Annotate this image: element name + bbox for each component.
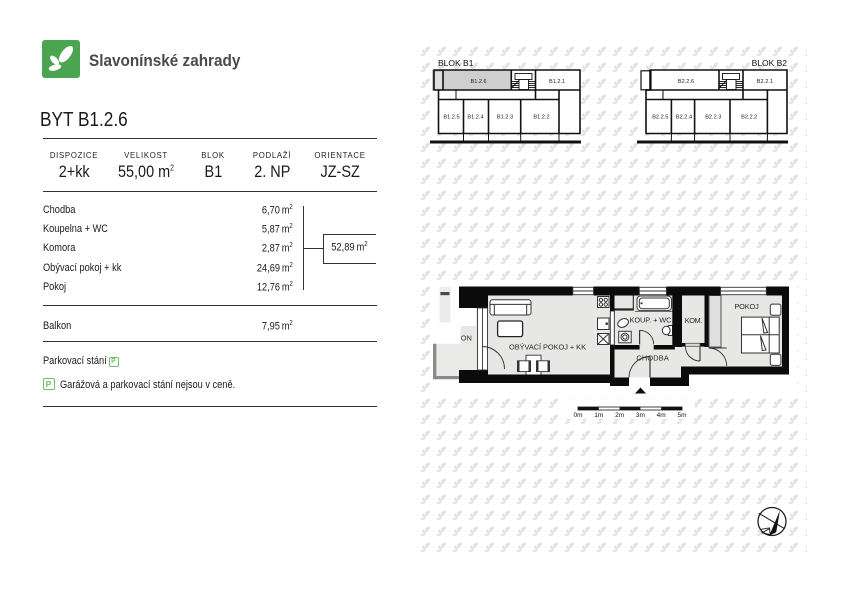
- svg-text:B1.2.4: B1.2.4: [467, 115, 483, 121]
- svg-text:B1.2.6: B1.2.6: [471, 79, 487, 85]
- svg-text:KOM.: KOM.: [685, 316, 703, 325]
- svg-text:B2.2.6: B2.2.6: [678, 79, 694, 85]
- svg-text:BLOK B2: BLOK B2: [752, 58, 788, 68]
- svg-text:B2.2.5: B2.2.5: [652, 115, 668, 121]
- svg-text:POKOJ: POKOJ: [734, 302, 759, 311]
- svg-text:B1.2.5: B1.2.5: [443, 115, 459, 121]
- svg-text:1m: 1m: [594, 412, 603, 419]
- svg-text:0m: 0m: [573, 412, 582, 419]
- svg-text:BLOK B1: BLOK B1: [438, 58, 474, 68]
- svg-text:2m: 2m: [615, 412, 624, 419]
- svg-text:CHODBA: CHODBA: [636, 354, 669, 363]
- svg-text:B1.2.2: B1.2.2: [533, 115, 549, 121]
- svg-text:B1.2.1: B1.2.1: [549, 79, 565, 85]
- svg-text:B2.2.4: B2.2.4: [676, 115, 692, 121]
- svg-text:B1.2.3: B1.2.3: [497, 115, 513, 121]
- svg-text:B2.2.2: B2.2.2: [741, 115, 757, 121]
- svg-text:B2.2.3: B2.2.3: [705, 115, 721, 121]
- svg-text:4m: 4m: [657, 412, 666, 419]
- svg-text:OBÝVACÍ POKOJ + KK: OBÝVACÍ POKOJ + KK: [509, 343, 586, 352]
- svg-text:5m: 5m: [677, 412, 686, 419]
- svg-text:B2.2.1: B2.2.1: [757, 79, 773, 85]
- svg-text:3m: 3m: [636, 412, 645, 419]
- svg-text:KOUP. + WC: KOUP. + WC: [630, 316, 673, 325]
